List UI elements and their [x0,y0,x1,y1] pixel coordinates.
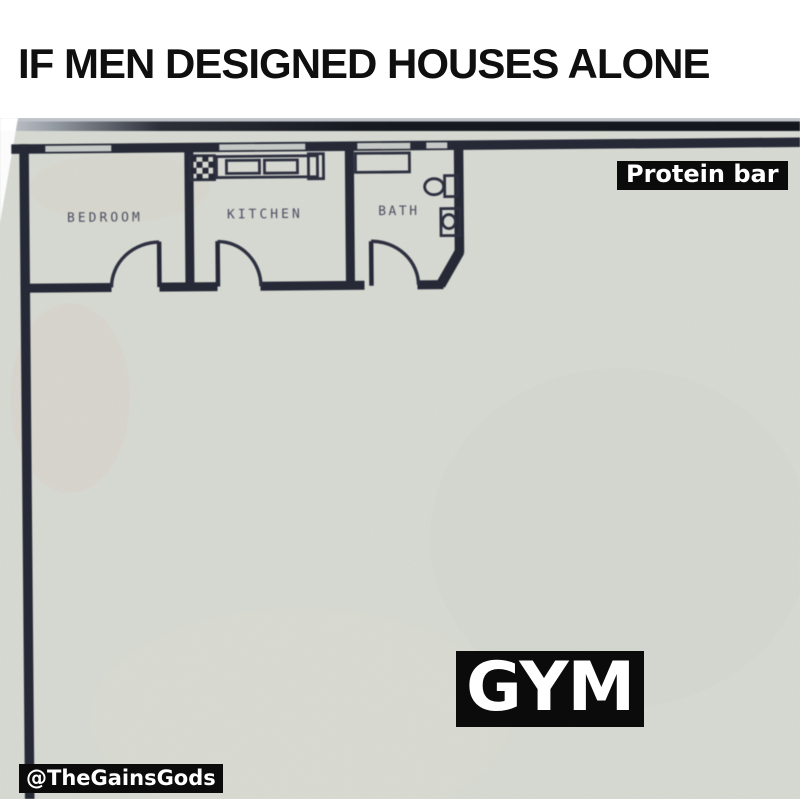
watermark: @TheGainsGods [19,764,223,793]
floor-plan-svg: BEDROOM KITCHEN BATH [0,118,800,799]
protein-bar-label: Protein bar [617,161,788,190]
floor-plan-photo: BEDROOM KITCHEN BATH Protein bar GYM @Th… [0,118,800,799]
photo-grain [0,131,800,799]
photo-top-edge [0,122,800,132]
gym-label: GYM [456,651,644,727]
meme-title: IF MEN DESIGNED HOUSES ALONE [18,40,710,88]
photo-top-edge-highlight [0,118,800,122]
